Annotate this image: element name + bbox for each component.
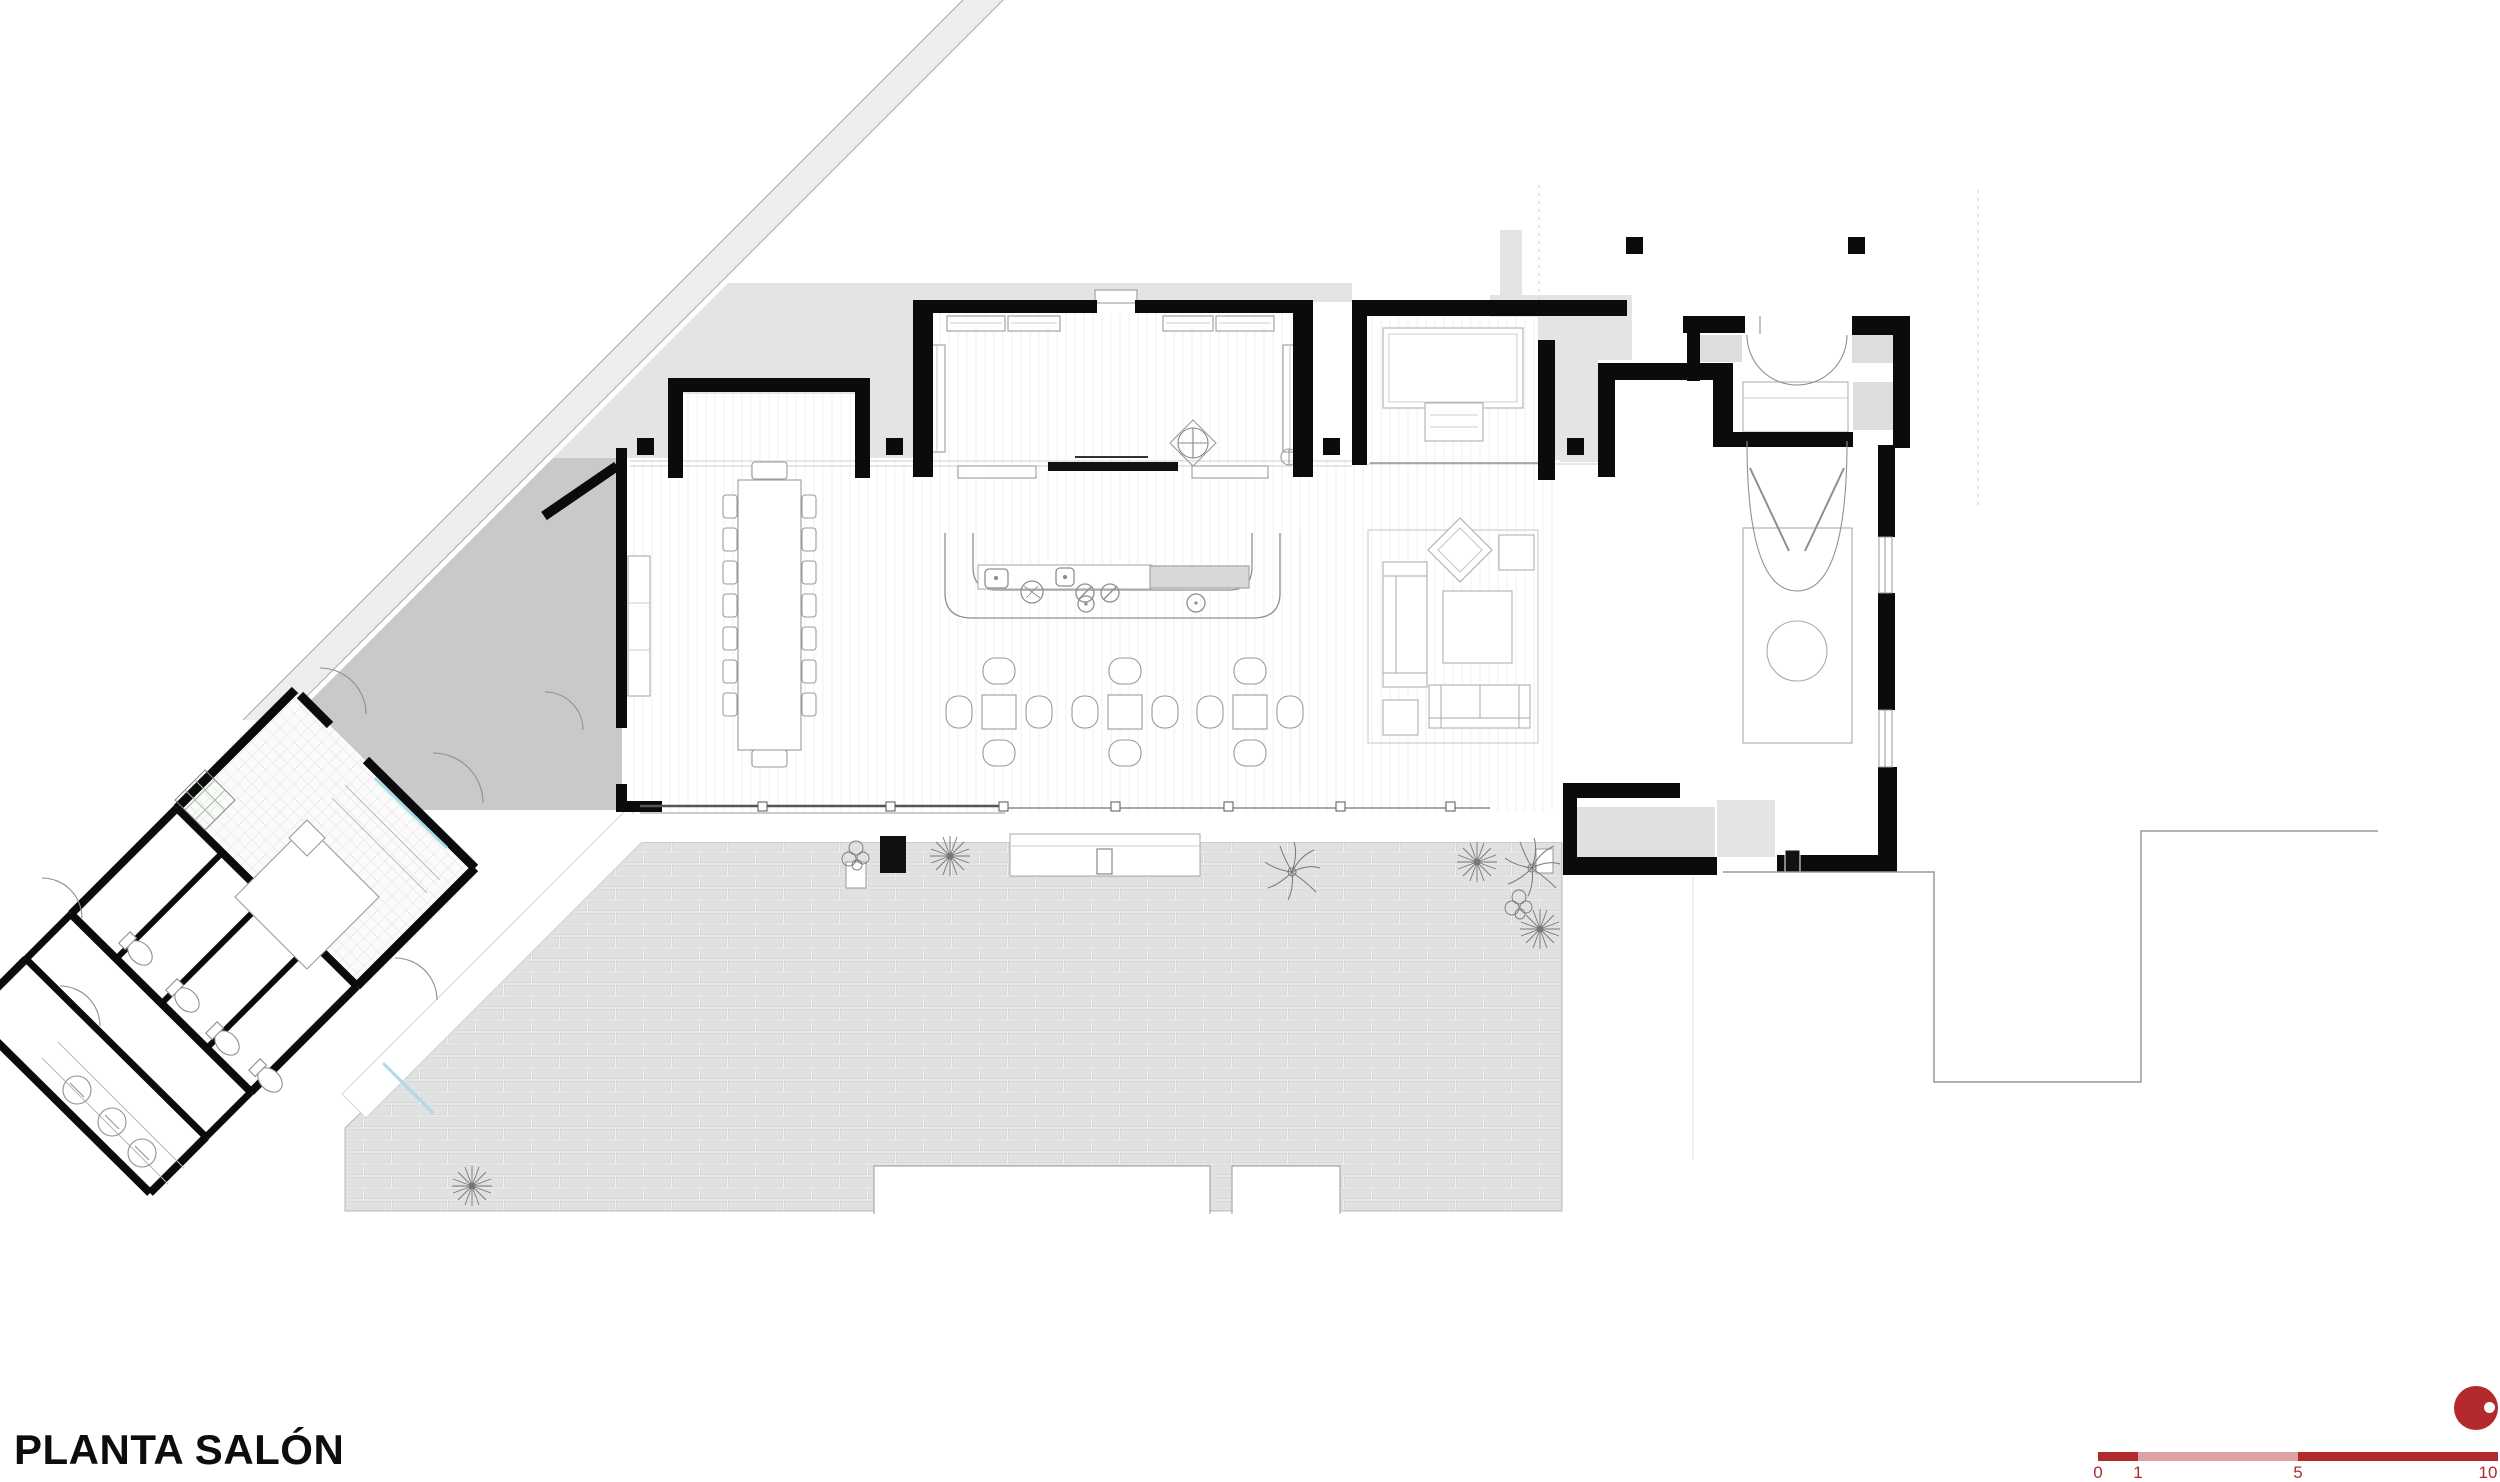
cafe-tables — [946, 658, 1303, 766]
floorplan-sheet: PLANTA SALÓN 0 1 5 10 — [0, 0, 2500, 1482]
stage-floor — [933, 313, 1293, 460]
plan-title: PLANTA SALÓN — [14, 1426, 344, 1474]
wing-table — [1743, 528, 1852, 743]
marker-dot — [2484, 1402, 2495, 1413]
floor-plan-drawing — [0, 0, 2500, 1482]
sheet-crop-mask — [0, 1214, 2500, 1482]
vestibule-mat — [1743, 382, 1848, 432]
terrace-paving — [345, 842, 1562, 1211]
red-dot-marker — [2454, 1386, 2498, 1430]
sinks — [42, 1042, 184, 1184]
